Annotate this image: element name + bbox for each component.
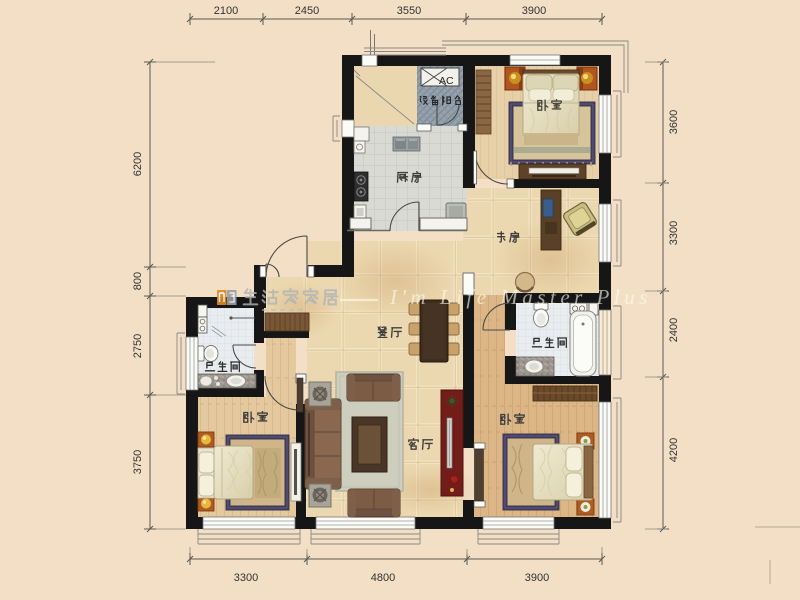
- svg-text:800: 800: [132, 272, 144, 290]
- svg-text:2450: 2450: [295, 5, 319, 17]
- svg-text:2100: 2100: [214, 5, 238, 17]
- svg-text:2750: 2750: [132, 334, 144, 358]
- svg-text:3900: 3900: [525, 572, 549, 584]
- svg-text:I'm Life Master Plus: I'm Life Master Plus: [389, 285, 652, 309]
- svg-text:3600: 3600: [668, 110, 680, 134]
- svg-text:AC: AC: [439, 75, 454, 87]
- svg-text:3550: 3550: [397, 5, 421, 17]
- svg-text:3900: 3900: [522, 5, 546, 17]
- svg-text:3750: 3750: [132, 450, 144, 474]
- svg-text:2400: 2400: [668, 318, 680, 342]
- svg-text:6200: 6200: [132, 152, 144, 176]
- svg-text:3300: 3300: [234, 572, 258, 584]
- svg-text:4800: 4800: [371, 572, 395, 584]
- svg-text:4200: 4200: [668, 438, 680, 462]
- svg-text:3300: 3300: [668, 221, 680, 245]
